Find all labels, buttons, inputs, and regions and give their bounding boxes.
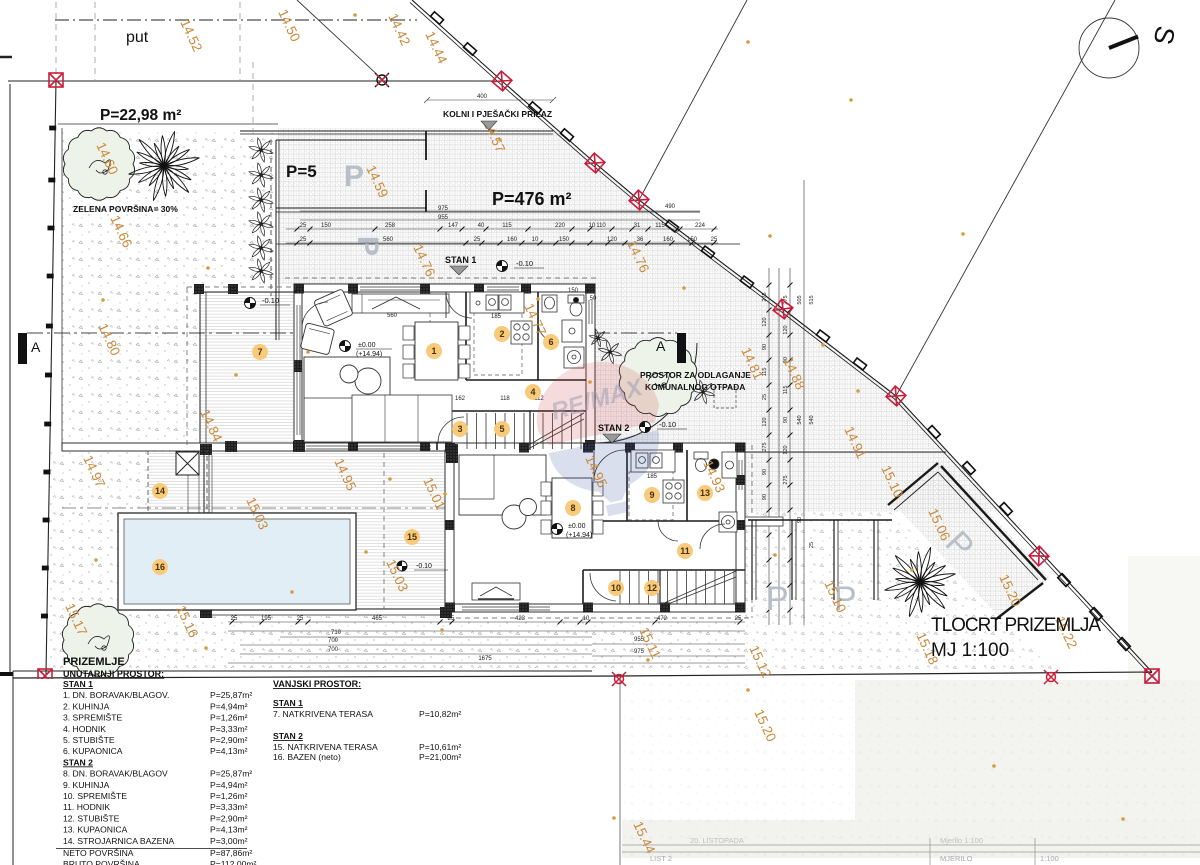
svg-text:P=5: P=5 — [286, 162, 317, 181]
svg-text:955: 955 — [438, 215, 449, 221]
svg-text:120: 120 — [762, 417, 768, 426]
svg-text:P=87,86m²: P=87,86m² — [210, 848, 252, 858]
svg-text:P=2,90m²: P=2,90m² — [210, 813, 248, 823]
svg-text:±0.00: ±0.00 — [568, 523, 586, 530]
svg-text:220: 220 — [555, 223, 566, 229]
svg-text:110: 110 — [596, 223, 606, 229]
svg-text:120: 120 — [762, 317, 768, 326]
svg-text:1: 1 — [431, 346, 436, 356]
svg-text:P=3,00m²: P=3,00m² — [210, 836, 248, 846]
svg-text:710: 710 — [331, 630, 342, 636]
svg-text:P=1,26m²: P=1,26m² — [210, 713, 248, 723]
svg-text:505: 505 — [797, 295, 803, 304]
svg-text:PROSTOR ZA ODLAGANJE: PROSTOR ZA ODLAGANJE — [640, 370, 751, 380]
svg-text:PRIZEMLJE: PRIZEMLJE — [63, 656, 125, 668]
svg-text:14: 14 — [155, 486, 165, 496]
svg-text:700: 700 — [328, 638, 339, 644]
svg-text:13: 13 — [700, 488, 710, 498]
svg-text:25: 25 — [711, 237, 718, 243]
svg-text:P=21,00m²: P=21,00m² — [419, 752, 461, 762]
svg-text:16: 16 — [155, 562, 165, 572]
svg-text:P=25,87m²: P=25,87m² — [210, 769, 252, 779]
svg-text:10: 10 — [532, 237, 539, 243]
svg-text:4: 4 — [530, 387, 535, 397]
svg-text:160: 160 — [663, 237, 674, 243]
svg-text:(+14.94): (+14.94) — [356, 351, 382, 358]
svg-text:25: 25 — [300, 223, 307, 229]
svg-text:6: 6 — [548, 337, 553, 347]
svg-text:275: 275 — [783, 475, 789, 484]
svg-text:STAN 1: STAN 1 — [273, 698, 303, 708]
svg-text:A: A — [31, 339, 41, 355]
svg-text:515: 515 — [809, 295, 815, 304]
svg-text:12: 12 — [647, 583, 657, 593]
svg-text:150: 150 — [687, 237, 698, 243]
svg-text:275: 275 — [762, 292, 768, 301]
svg-text:5: 5 — [499, 424, 504, 434]
svg-text:25: 25 — [809, 542, 815, 548]
svg-text:120: 120 — [783, 445, 789, 454]
svg-text:P: P — [766, 580, 789, 618]
svg-text:25: 25 — [762, 394, 768, 400]
svg-text:(+14.94): (+14.94) — [566, 532, 592, 539]
svg-text:975: 975 — [634, 649, 645, 655]
svg-text:975: 975 — [438, 206, 449, 212]
svg-text:560: 560 — [383, 237, 394, 243]
svg-text:20. LISTOPADA: 20. LISTOPADA — [690, 836, 744, 845]
svg-text:25: 25 — [297, 616, 304, 622]
svg-text:KOLNI I PJEŠAČKI PRILAZ: KOLNI I PJEŠAČKI PRILAZ — [443, 108, 552, 119]
svg-text:25: 25 — [474, 237, 481, 243]
svg-text:-0.10: -0.10 — [262, 296, 279, 305]
svg-text:11. HODNIK: 11. HODNIK — [63, 802, 110, 812]
svg-text:KOMUNALNOG OTPADA: KOMUNALNOG OTPADA — [645, 382, 745, 392]
svg-text:7: 7 — [257, 347, 262, 357]
svg-text:P=4,13m²: P=4,13m² — [210, 746, 248, 756]
svg-text:472: 472 — [657, 616, 668, 622]
svg-text:275: 275 — [762, 442, 768, 451]
svg-text:13. KUPAONICA: 13. KUPAONICA — [63, 825, 128, 835]
svg-text:185: 185 — [647, 474, 658, 480]
svg-text:700: 700 — [328, 647, 339, 653]
svg-text:6. KUPAONICA: 6. KUPAONICA — [63, 746, 123, 756]
svg-text:224: 224 — [695, 223, 706, 229]
svg-text:11: 11 — [680, 546, 690, 556]
svg-text:150: 150 — [559, 237, 570, 243]
svg-text:P=2,90m²: P=2,90m² — [210, 735, 248, 745]
svg-text:15. NATKRIVENA TERASA: 15. NATKRIVENA TERASA — [273, 742, 378, 752]
svg-text:P=4,94m²: P=4,94m² — [210, 780, 248, 790]
svg-text:STAN 1: STAN 1 — [63, 679, 93, 689]
svg-text:25: 25 — [300, 237, 307, 243]
svg-text:STAN 2: STAN 2 — [598, 423, 629, 433]
svg-text:put: put — [126, 29, 149, 46]
svg-text:STAN 2: STAN 2 — [273, 731, 303, 741]
svg-text:BRUTO POVRŠINA: BRUTO POVRŠINA — [63, 859, 140, 865]
svg-text:540: 540 — [809, 415, 815, 424]
svg-text:TLOCRT PRIZEMLJA: TLOCRT PRIZEMLJA — [931, 615, 1101, 636]
svg-text:15: 15 — [407, 532, 417, 542]
svg-text:465: 465 — [372, 616, 383, 622]
svg-text:10. SPREMIŠTE: 10. SPREMIŠTE — [63, 791, 127, 801]
svg-text:STAN 1: STAN 1 — [445, 255, 476, 265]
svg-text:P: P — [351, 236, 384, 256]
svg-text:-0.10: -0.10 — [516, 259, 533, 268]
svg-text:10: 10 — [589, 223, 596, 229]
svg-text:40: 40 — [478, 223, 485, 229]
svg-text:4. HODNIK: 4. HODNIK — [63, 724, 106, 734]
svg-text:90: 90 — [783, 417, 789, 423]
svg-text:160: 160 — [507, 237, 518, 243]
svg-text:162: 162 — [455, 396, 466, 402]
svg-text:150: 150 — [568, 288, 579, 294]
svg-text:MJERILO: MJERILO — [940, 854, 973, 863]
svg-text:-0.10: -0.10 — [659, 420, 676, 429]
svg-text:UNUTARNJI PROSTOR:: UNUTARNJI PROSTOR: — [63, 669, 164, 679]
svg-text:8: 8 — [570, 503, 575, 513]
svg-text:P=112,00m²: P=112,00m² — [210, 859, 257, 865]
svg-text:-0.10: -0.10 — [416, 563, 432, 570]
svg-text:25: 25 — [231, 616, 238, 622]
svg-text:2. KUHINJA: 2. KUHINJA — [63, 701, 110, 711]
svg-text:560: 560 — [387, 313, 398, 319]
svg-text:1:100: 1:100 — [1040, 854, 1059, 863]
svg-text:Mjerilo 1:100: Mjerilo 1:100 — [940, 836, 983, 845]
svg-text:90: 90 — [762, 344, 768, 350]
svg-text:115: 115 — [655, 223, 665, 229]
svg-text:1. DN. BORAVAK/BLAGOV.: 1. DN. BORAVAK/BLAGOV. — [63, 690, 169, 700]
svg-text:P=1,26m²: P=1,26m² — [210, 791, 248, 801]
svg-text:1675: 1675 — [478, 656, 492, 662]
svg-text:90: 90 — [762, 469, 768, 475]
svg-text:P=3,33m²: P=3,33m² — [210, 724, 248, 734]
svg-text:P=4,13m²: P=4,13m² — [210, 825, 248, 835]
svg-text:9: 9 — [649, 490, 654, 500]
svg-text:16. BAZEN (neto): 16. BAZEN (neto) — [273, 752, 341, 762]
svg-text:490: 490 — [665, 204, 676, 210]
svg-text:115: 115 — [502, 223, 512, 229]
svg-text:90: 90 — [762, 494, 768, 500]
svg-text:±0.00: ±0.00 — [358, 342, 376, 349]
svg-text:P=3,33m²: P=3,33m² — [210, 802, 248, 812]
svg-text:STAN 2: STAN 2 — [63, 757, 93, 767]
svg-text:120: 120 — [783, 325, 789, 334]
svg-text:P=10,61m²: P=10,61m² — [419, 742, 461, 752]
svg-text:3: 3 — [457, 424, 462, 434]
svg-text:195: 195 — [261, 616, 272, 622]
svg-text:8. DN. BORAVAK/BLAGOV: 8. DN. BORAVAK/BLAGOV — [63, 769, 168, 779]
svg-text:185: 185 — [491, 314, 502, 320]
svg-text:118: 118 — [500, 396, 510, 402]
svg-text:2: 2 — [499, 329, 504, 339]
svg-text:423: 423 — [515, 616, 526, 622]
svg-text:7. NATKRIVENA TERASA: 7. NATKRIVENA TERASA — [273, 709, 373, 719]
svg-text:120: 120 — [607, 237, 618, 243]
svg-text:P=476 m²: P=476 m² — [492, 189, 572, 209]
svg-text:3. SPREMIŠTE: 3. SPREMIŠTE — [63, 713, 122, 723]
svg-text:12. STUBIŠTE: 12. STUBIŠTE — [63, 813, 120, 823]
svg-text:10: 10 — [583, 616, 590, 622]
svg-text:540: 540 — [797, 415, 803, 424]
svg-text:LIST 2: LIST 2 — [650, 854, 672, 863]
svg-text:A: A — [656, 338, 666, 354]
svg-text:VANJSKI PROSTOR:: VANJSKI PROSTOR: — [273, 679, 361, 689]
svg-text:115: 115 — [783, 386, 789, 395]
svg-text:258: 258 — [385, 223, 396, 229]
svg-text:10: 10 — [611, 583, 621, 593]
svg-text:P: P — [344, 160, 364, 193]
svg-text:P=10,82m²: P=10,82m² — [419, 709, 461, 719]
svg-text:14. STROJARNICA BAZENA: 14. STROJARNICA BAZENA — [63, 836, 175, 846]
svg-text:P=22,98 m²: P=22,98 m² — [100, 107, 181, 124]
svg-text:150: 150 — [321, 223, 332, 229]
svg-text:P=25,87m²: P=25,87m² — [210, 690, 252, 700]
svg-text:ZELENA POVRŠINA= 30%: ZELENA POVRŠINA= 30% — [73, 203, 178, 214]
svg-text:5. STUBIŠTE: 5. STUBIŠTE — [63, 735, 115, 745]
svg-text:147: 147 — [448, 223, 459, 229]
svg-text:31: 31 — [634, 223, 641, 229]
svg-text:MJ 1:100: MJ 1:100 — [931, 640, 1009, 661]
svg-text:NETO POVRŠINA: NETO POVRŠINA — [63, 848, 134, 858]
svg-text:25: 25 — [735, 616, 742, 622]
svg-text:9. KUHINJA: 9. KUHINJA — [63, 780, 110, 790]
svg-text:400: 400 — [477, 94, 488, 100]
svg-text:P=4,94m²: P=4,94m² — [210, 701, 248, 711]
